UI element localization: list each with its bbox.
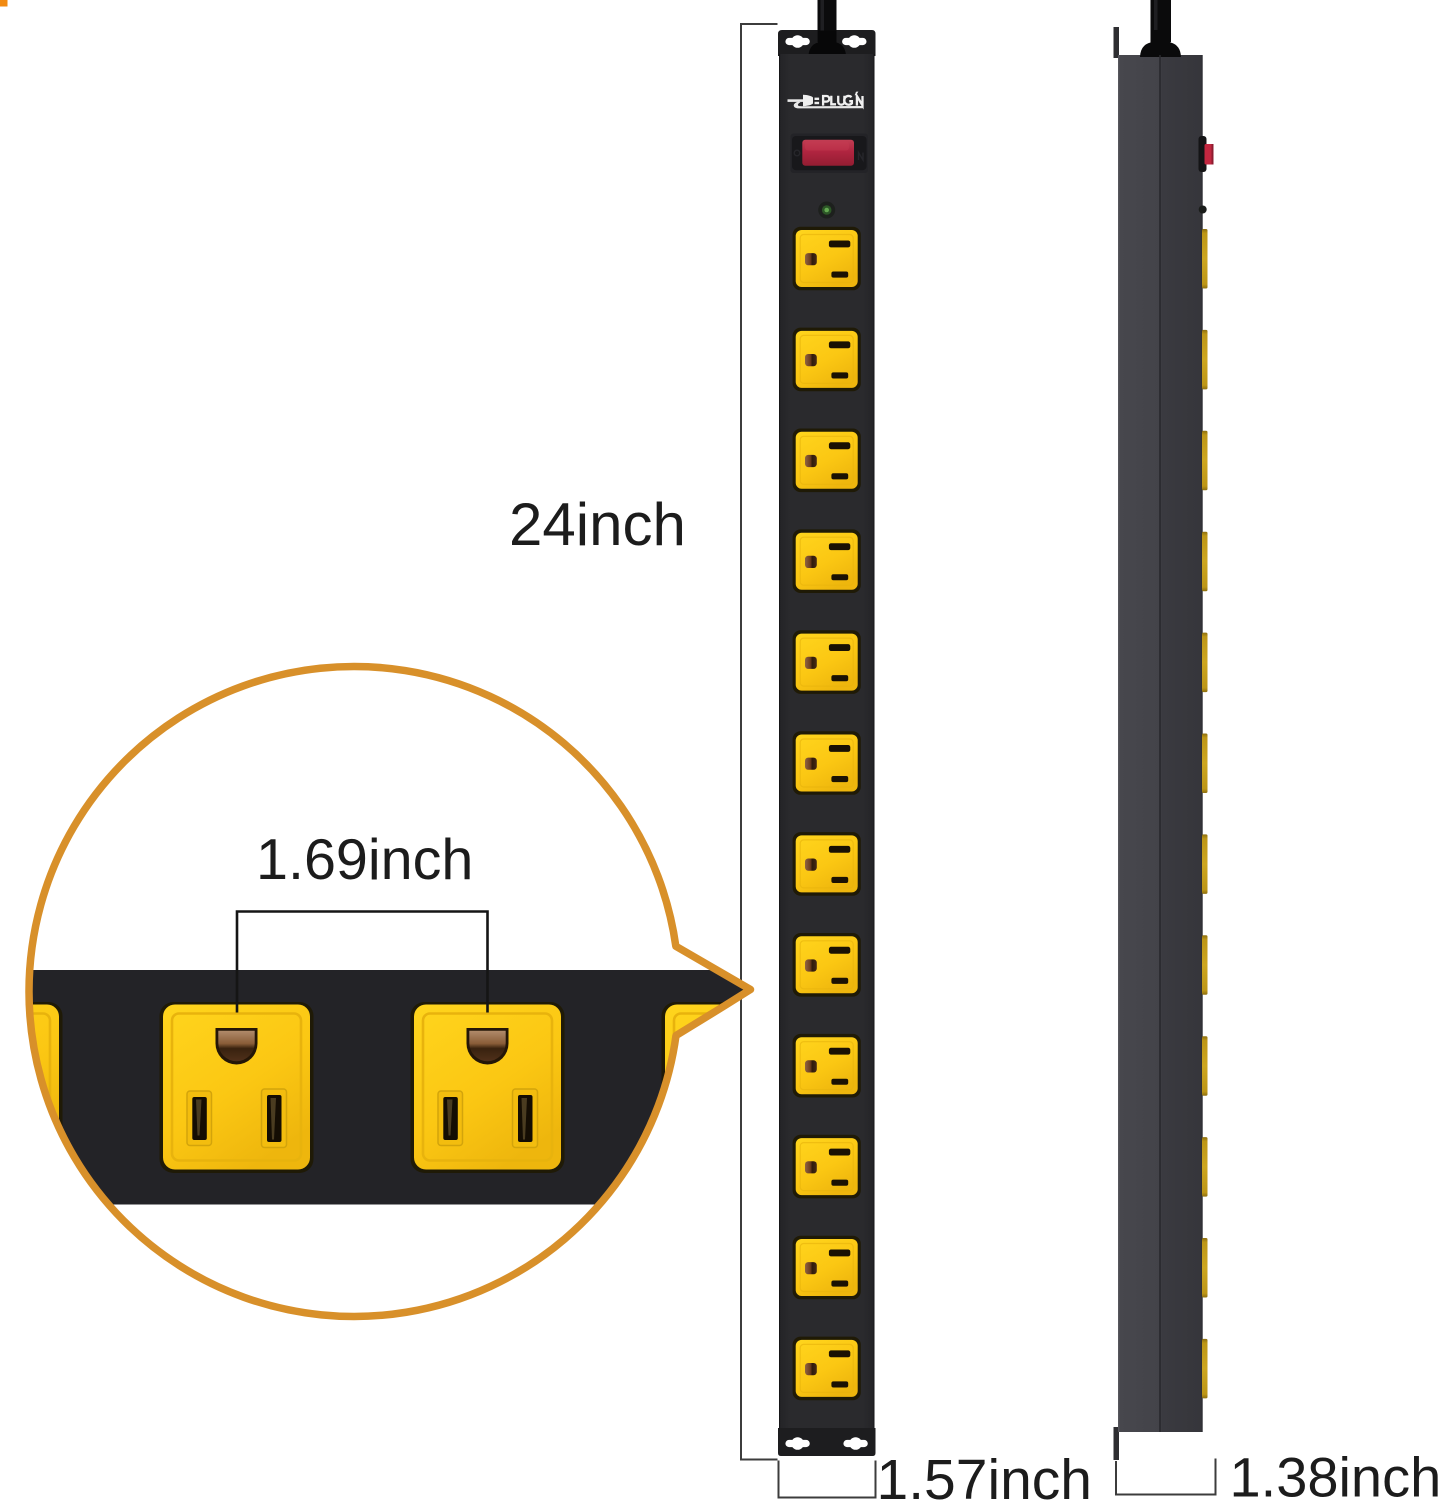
svg-text:1.38inch: 1.38inch (1230, 1446, 1442, 1500)
svg-text:1.57inch: 1.57inch (877, 1448, 1093, 1500)
svg-text:24inch: 24inch (509, 491, 686, 558)
svg-text:1.69inch: 1.69inch (256, 828, 473, 892)
